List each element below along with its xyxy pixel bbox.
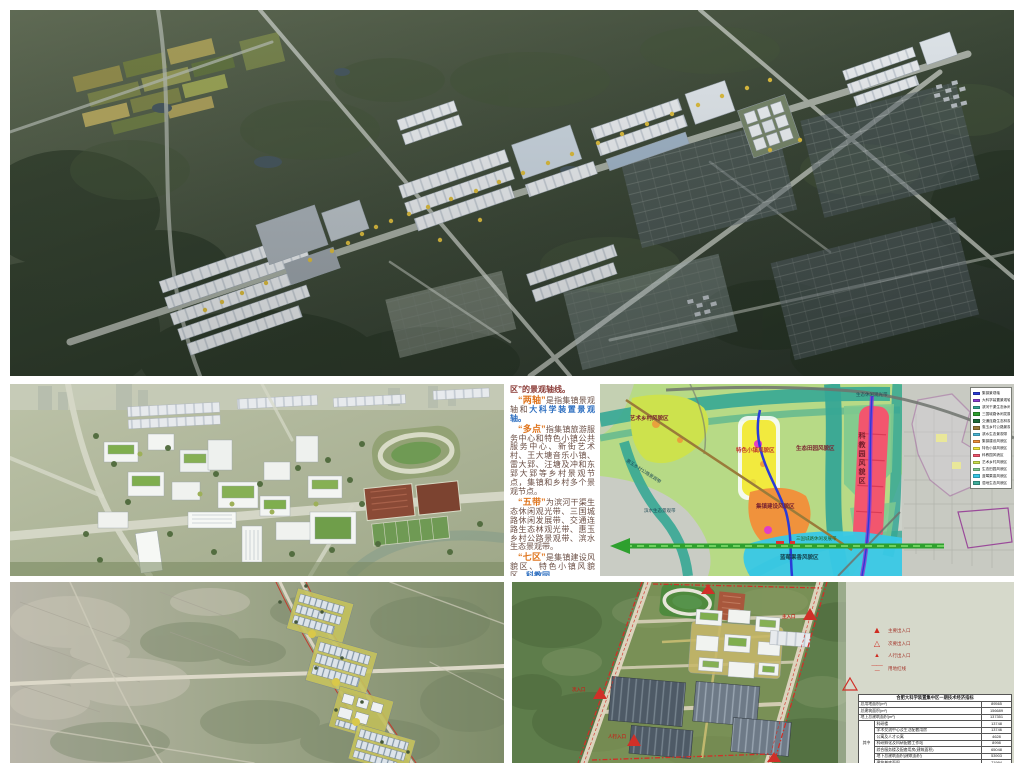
planning-collage-page: 区”的景观轴线。 “两轴”是指集镇景观轴和大科学装置景观轴。 “多点”指集镇旅游… xyxy=(0,0,1024,768)
belt-label-waterfront: 滨水生态景观带 xyxy=(644,508,676,514)
map-legend-item: 滨水生态景观带 xyxy=(973,431,1010,438)
triangle-outline-icon: △ xyxy=(870,640,884,648)
siteplan-legend: ▲ 主要出入口 △ 次要出入口 ▲ 人行出入口 —·—·— 用地红线 xyxy=(870,626,911,674)
map-legend-item: 湿地生态风貌区 xyxy=(973,480,1010,487)
zoning-map-panel: 艺术乡村风貌区 特色小镇风貌区 生态田园风貌区 集镇建设风貌区 科教园风貌区 蓝… xyxy=(600,384,1014,576)
legend-item-secondary-entrance: △ 次要出入口 xyxy=(870,640,911,648)
legend-color-chip xyxy=(973,419,980,422)
paragraph-five-belts: “五带”为滨河干渠生态休闲观光带、三国城路休闲发展带、交通连路生态林观光带、惠玉… xyxy=(510,498,595,552)
map-legend-item: 三国城路休闲发展带 xyxy=(973,411,1010,418)
map-legend-item: 特色小镇风貌区 xyxy=(973,445,1010,452)
map-legend: 集镇景观轴 大科学装置景观轴 滨河干渠生态休闲观光带 三国城路休闲发展带 交通连… xyxy=(970,387,1012,489)
legend-item-main-entrance: ▲ 主要出入口 xyxy=(870,626,911,635)
technical-indicator-table: 合肥大科学装置集中区一期技术经济指标 总用地面积(m²)89565 总建筑面积(… xyxy=(858,694,1012,763)
zone-label-blueberry: 蓝莓果香风貌区 xyxy=(780,553,819,561)
map-legend-item: 蓝莓果香风貌区 xyxy=(973,473,1010,480)
legend-color-chip xyxy=(973,426,980,429)
legend-color-chip xyxy=(973,474,980,477)
intro-line: 区”的景观轴线。 xyxy=(510,385,570,394)
map-legend-item: 生态田园风貌区 xyxy=(973,466,1010,473)
legend-color-chip xyxy=(973,440,980,443)
map-legend-item: 集镇建设风貌区 xyxy=(973,438,1010,445)
campus-aerial-render xyxy=(10,384,504,576)
map-legend-item: 集镇景观轴 xyxy=(973,390,1010,397)
zone-label-featured-town: 特色小镇风貌区 xyxy=(736,446,775,454)
belt-label-leisure: 生态休闲观光带 xyxy=(856,392,888,398)
paragraph-seven-zones: “七区”是集镇建设风貌区、特色小镇风貌区、科教园 xyxy=(510,553,595,576)
entrance-label-secondary: 次入口 xyxy=(572,687,586,693)
legend-color-chip xyxy=(973,468,980,471)
entrance-label-pedestrian: 人行入口 xyxy=(608,734,626,740)
zone-label-art-village: 艺术乡村风貌区 xyxy=(630,414,669,422)
table-row: 建筑基底面积71994 xyxy=(859,760,1012,764)
campus-aerial-render-panel xyxy=(10,384,504,576)
map-legend-item: 惠玉乡村公路景观带 xyxy=(973,424,1010,431)
legend-color-chip xyxy=(973,481,980,484)
planning-description-panel: 区”的景观轴线。 “两轴”是指集镇景观轴和大科学装置景观轴。 “多点”指集镇旅游… xyxy=(506,384,598,576)
zone-label-eco-fields: 生态田园风貌区 xyxy=(796,444,835,452)
map-legend-item: 交通连路生态林观光带 xyxy=(973,418,1010,425)
legend-color-chip xyxy=(973,399,980,402)
triangle-small-icon: ▲ xyxy=(870,653,884,659)
map-legend-item: 滨河干渠生态休闲观光带 xyxy=(973,404,1010,411)
legend-color-chip xyxy=(973,447,980,450)
legend-color-chip xyxy=(973,406,980,409)
entrance-label-main: 主入口 xyxy=(782,614,796,620)
legend-color-chip xyxy=(973,461,980,464)
group-label-cell: 其中 xyxy=(859,721,875,764)
paragraph-multi-points: “多点”指集镇旅游服务中心和特色小镇公共服务中心、新街艺术村、王大塘音乐小镇、雷… xyxy=(510,425,595,497)
top-aerial-render xyxy=(10,10,1014,376)
satellite-siteplan xyxy=(10,582,504,763)
dash-dot-line-icon: —·—·— xyxy=(870,664,884,674)
legend-item-pedestrian-entrance: ▲ 人行出入口 xyxy=(870,653,911,659)
paragraph-two-axes: “两轴”是指集镇景观轴和大科学装置景观轴。 xyxy=(510,396,595,424)
zone-label-science-park: 科教园风貌区 xyxy=(856,432,866,486)
phase1-siteplan-panel: 主入口 次入口 人行入口 ▲ 主要出入口 △ 次要出入口 ▲ 人行出入口 —·—… xyxy=(512,582,1014,763)
zone-label-town-construction: 集镇建设风貌区 xyxy=(756,502,795,510)
legend-color-chip xyxy=(973,412,980,415)
legend-color-chip xyxy=(973,392,980,395)
legend-color-chip xyxy=(973,433,980,436)
legend-item-red-line: —·—·— 用地红线 xyxy=(870,664,911,674)
satellite-siteplan-panel xyxy=(10,582,504,763)
triangle-solid-icon: ▲ xyxy=(870,626,884,635)
belt-label-sanguo: 三国城路休闲发展带 xyxy=(796,536,837,542)
planning-description-text: 区”的景观轴线。 “两轴”是指集镇景观轴和大科学装置景观轴。 “多点”指集镇旅游… xyxy=(506,384,598,576)
map-legend-item: 科教园风貌区 xyxy=(973,452,1010,459)
legend-color-chip xyxy=(973,454,980,457)
map-legend-item: 大科学装置景观轴 xyxy=(973,397,1010,404)
map-legend-item: 艺术乡村风貌区 xyxy=(973,459,1010,466)
top-aerial-render-panel xyxy=(10,10,1014,376)
